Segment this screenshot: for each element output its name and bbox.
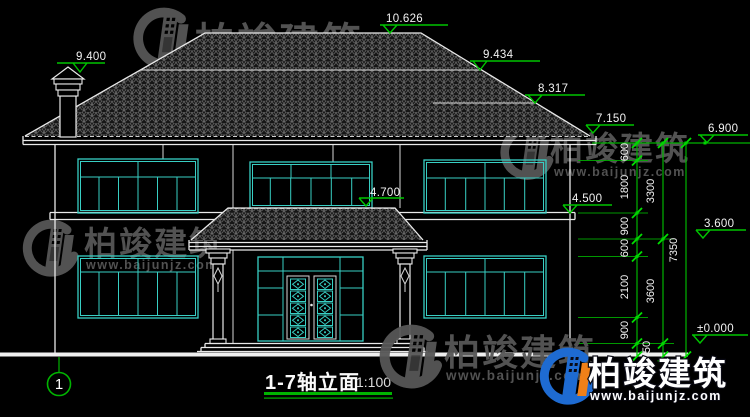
level-marker-window-head: 3.600 — [696, 218, 746, 238]
chimney-cap — [52, 67, 84, 79]
title-underline-thick — [264, 392, 392, 395]
dim-2100: 2100 — [619, 275, 631, 299]
second-floor-window-middle — [250, 162, 372, 208]
level-marker-ridge: 10.626 — [380, 13, 448, 33]
dim-600a: 600 — [619, 143, 631, 161]
door-surround — [258, 257, 363, 341]
door-handle — [310, 304, 313, 307]
level-marker-eave-wall: 6.900 — [698, 123, 748, 143]
level-marker-ground-floor: ±0.000 — [692, 323, 748, 343]
title-block: 1-7轴立面 1:100 — [264, 370, 393, 399]
dim-1800: 1800 — [619, 175, 631, 199]
svg-text:±0.000: ±0.000 — [697, 323, 734, 335]
watermark-logo — [385, 330, 439, 384]
watermark-url: www.baijunjz.com — [589, 389, 722, 403]
axis-marker: 1 — [48, 357, 71, 396]
dim-7350: 7350 — [668, 238, 680, 262]
svg-text:4.500: 4.500 — [572, 193, 602, 205]
porch — [189, 208, 428, 352]
watermark-logo — [27, 224, 75, 272]
drawing-scale: 1:100 — [356, 374, 391, 390]
dim-900b: 900 — [619, 321, 631, 339]
title-underline-thin — [264, 398, 393, 399]
entry-steps — [197, 344, 428, 352]
level-marker-upper-ridge-3: 8.317 — [525, 83, 585, 103]
svg-text:10.626: 10.626 — [386, 13, 423, 25]
watermark-left: 柏竣建筑 www.baijunjz.com — [27, 224, 224, 272]
axis-number: 1 — [55, 376, 63, 393]
second-floor-window-left — [78, 159, 198, 213]
cad-elevation-drawing: 柏竣建筑 www.baijunjz.com 柏竣建筑 www.baijunjz.… — [0, 0, 750, 417]
column-base — [210, 339, 226, 344]
watermark-brand: 柏竣建筑 — [588, 355, 728, 392]
watermark-bottom-right: 柏竣建筑 www.baijunjz.com — [544, 352, 728, 403]
chimney-shaft — [60, 96, 76, 137]
svg-text:7.150: 7.150 — [596, 113, 626, 125]
first-floor-window-right — [424, 256, 546, 318]
dim-3300: 3300 — [645, 179, 657, 203]
porch-roof-hatch — [191, 208, 423, 240]
svg-text:6.900: 6.900 — [708, 123, 738, 135]
level-marker-porch-roof: 4.700 — [359, 187, 404, 206]
svg-text:4.700: 4.700 — [370, 187, 400, 199]
svg-text:8.317: 8.317 — [538, 83, 568, 95]
entry-door — [258, 257, 363, 341]
level-marker-upper-ridge-2: 9.434 — [470, 49, 540, 70]
watermark-right: 柏竣建筑 www.baijunjz.com — [505, 130, 690, 179]
svg-text:9.400: 9.400 — [76, 51, 106, 63]
level-marker-chimney: 9.400 — [57, 51, 106, 72]
svg-text:3.600: 3.600 — [704, 218, 734, 230]
drawing-title: 1-7轴立面 — [265, 370, 360, 394]
dim-3600: 3600 — [645, 279, 657, 303]
dim-900a: 900 — [619, 217, 631, 235]
dim-600b: 600 — [619, 239, 631, 257]
svg-text:9.434: 9.434 — [483, 49, 514, 61]
drawing-canvas: 柏竣建筑 www.baijunjz.com 柏竣建筑 www.baijunjz.… — [0, 0, 750, 417]
